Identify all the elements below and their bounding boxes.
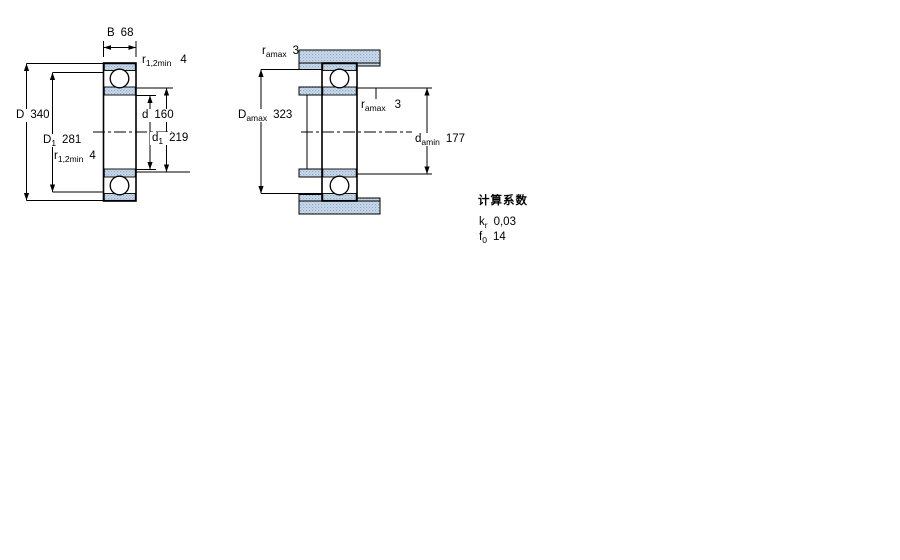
width-dimension [104, 41, 137, 57]
shoulder-outer-label: D1281 [41, 134, 83, 147]
shaft-abutment-label: damin177 [413, 133, 467, 146]
shaft-shoulder-top [299, 87, 322, 95]
bearing-dimension-figure: B68 r1,2min4 D340 D1281 r1,2min4 d160 d1… [0, 0, 900, 560]
shoulder-inner-dimension [136, 88, 190, 172]
outer-diameter-label: D340 [14, 109, 52, 122]
ball-top [110, 69, 129, 88]
calculation-factor-kr: kr0,03 [479, 216, 516, 229]
bore-label: d160 [140, 109, 176, 122]
width-dimension-label: B68 [107, 27, 133, 40]
housing-block-top [299, 50, 380, 63]
mounting-dimensions-drawing [258, 50, 432, 214]
ra-top-label: ramax3 [262, 45, 299, 58]
calculation-factor-f0: f014 [479, 231, 506, 244]
ball-top-right [330, 69, 349, 88]
r-bottom-label: r1,2min4 [54, 150, 96, 163]
ball-bottom-right [330, 176, 349, 195]
ball-bottom [110, 176, 129, 195]
housing-shoulder-top-right [357, 63, 380, 66]
outer-diameter-dimension [24, 64, 104, 201]
housing-shoulder-bottom-left [299, 195, 322, 202]
ra-mid-label: ramax3 [359, 99, 403, 112]
housing-abutment-label: Damax323 [236, 109, 294, 122]
housing-shoulder-top-left [299, 63, 322, 70]
diagram-canvas [0, 0, 900, 560]
shoulder-inner-label: d1219 [150, 132, 190, 145]
calculation-factors-title: 计算系数 [478, 195, 528, 208]
housing-block-bottom [299, 201, 380, 214]
housing-shoulder-bottom-right [357, 198, 380, 201]
shaft-shoulder-bottom [299, 169, 322, 177]
r-top-label: r1,2min4 [142, 54, 187, 67]
